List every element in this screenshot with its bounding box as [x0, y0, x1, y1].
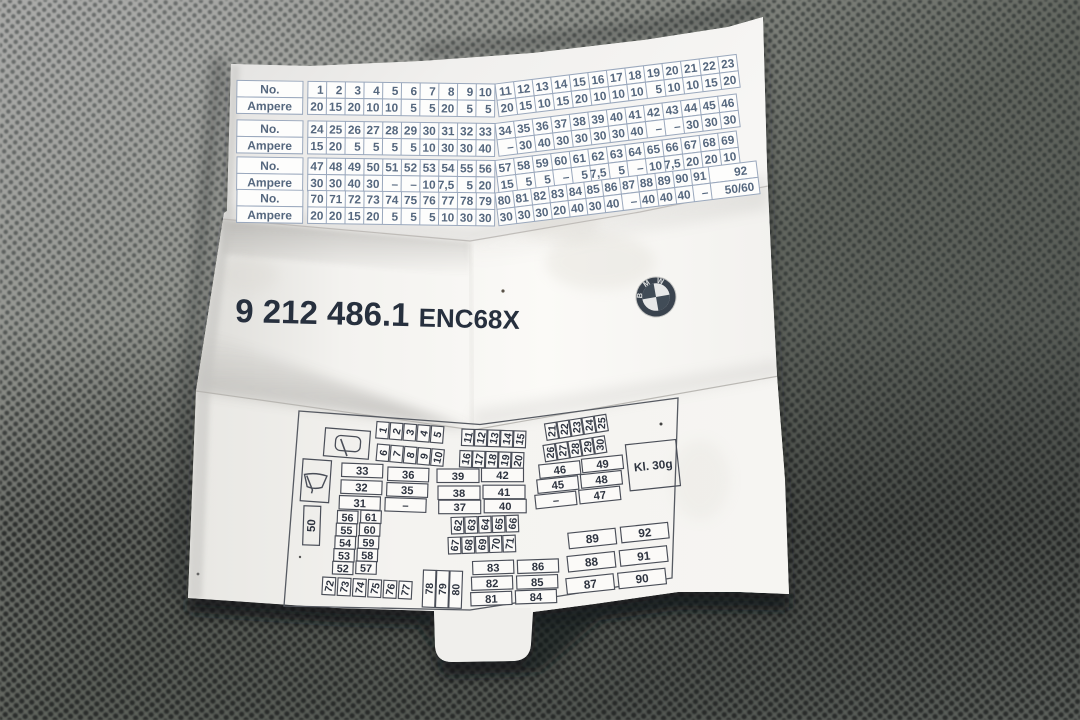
svg-text:20: 20: [722, 73, 737, 89]
svg-text:7,5: 7,5: [589, 165, 607, 181]
svg-text:20: 20: [574, 91, 589, 107]
svg-text:71: 71: [503, 537, 517, 550]
svg-text:88: 88: [639, 175, 654, 191]
svg-text:20: 20: [685, 154, 700, 170]
svg-text:82: 82: [486, 578, 499, 590]
svg-text:30: 30: [611, 126, 626, 142]
svg-text:–: –: [410, 177, 417, 191]
svg-text:58: 58: [361, 550, 373, 562]
svg-text:84: 84: [568, 184, 583, 200]
svg-text:46: 46: [553, 464, 567, 477]
svg-text:15: 15: [572, 74, 587, 90]
svg-text:10: 10: [722, 149, 737, 165]
svg-text:40: 40: [499, 501, 511, 513]
svg-text:30: 30: [518, 137, 533, 153]
svg-text:38: 38: [453, 488, 465, 500]
svg-text:92: 92: [733, 163, 748, 179]
svg-text:22: 22: [702, 58, 717, 74]
svg-text:87: 87: [621, 177, 636, 193]
svg-text:30: 30: [722, 112, 737, 128]
svg-text:89: 89: [657, 173, 672, 189]
svg-text:85: 85: [531, 577, 544, 589]
svg-text:39: 39: [591, 111, 606, 127]
svg-text:No.: No.: [260, 122, 280, 136]
svg-text:43: 43: [665, 102, 680, 118]
svg-text:30: 30: [535, 205, 550, 221]
svg-text:15: 15: [518, 98, 533, 114]
svg-text:15: 15: [329, 100, 343, 114]
svg-text:70: 70: [310, 192, 324, 206]
svg-text:5: 5: [354, 140, 361, 154]
svg-text:72: 72: [348, 192, 362, 206]
svg-text:5: 5: [373, 140, 380, 154]
svg-text:5: 5: [466, 102, 473, 116]
svg-text:49: 49: [348, 160, 362, 174]
svg-text:40: 40: [478, 141, 492, 155]
svg-text:20: 20: [441, 101, 455, 115]
svg-text:–: –: [402, 500, 409, 512]
svg-text:45: 45: [702, 98, 717, 114]
svg-text:7,5: 7,5: [663, 156, 681, 172]
svg-text:37: 37: [453, 502, 465, 514]
svg-text:47: 47: [310, 159, 324, 173]
svg-text:33: 33: [479, 125, 493, 139]
svg-text:67: 67: [449, 539, 463, 552]
svg-text:22: 22: [559, 423, 571, 435]
svg-text:No.: No.: [260, 82, 280, 96]
svg-text:25: 25: [329, 122, 343, 136]
svg-text:79: 79: [479, 194, 493, 208]
svg-text:81: 81: [485, 594, 498, 606]
svg-text:30: 30: [595, 439, 607, 451]
svg-text:85: 85: [586, 182, 601, 198]
svg-text:51: 51: [385, 160, 399, 174]
svg-text:15: 15: [310, 139, 324, 153]
svg-text:91: 91: [692, 168, 707, 184]
svg-text:52: 52: [337, 563, 349, 575]
svg-text:92: 92: [638, 525, 653, 540]
svg-text:90: 90: [635, 571, 650, 586]
svg-text:71: 71: [329, 192, 343, 206]
svg-text:38: 38: [572, 114, 587, 130]
svg-text:54: 54: [339, 538, 351, 550]
svg-text:74: 74: [385, 193, 399, 207]
svg-text:20: 20: [329, 139, 343, 153]
svg-text:23: 23: [720, 56, 735, 72]
svg-text:20: 20: [704, 151, 719, 167]
svg-text:9: 9: [467, 85, 474, 99]
svg-text:1: 1: [317, 83, 324, 97]
svg-text:35: 35: [401, 485, 414, 497]
svg-text:42: 42: [646, 105, 661, 121]
svg-text:30: 30: [460, 211, 474, 225]
svg-text:62: 62: [452, 519, 466, 532]
svg-text:91: 91: [636, 548, 651, 563]
svg-text:4: 4: [373, 84, 380, 98]
svg-text:15: 15: [704, 75, 719, 91]
svg-text:23: 23: [571, 421, 583, 433]
svg-text:10: 10: [611, 86, 626, 102]
svg-text:30: 30: [441, 141, 455, 155]
svg-text:12: 12: [516, 81, 531, 97]
svg-text:2: 2: [336, 83, 343, 97]
svg-text:36: 36: [535, 118, 550, 134]
svg-text:29: 29: [582, 441, 594, 453]
svg-text:52: 52: [404, 161, 418, 175]
svg-text:26: 26: [545, 447, 557, 459]
svg-text:21: 21: [683, 61, 698, 77]
svg-text:86: 86: [532, 561, 545, 573]
svg-text:No.: No.: [260, 191, 280, 205]
svg-text:48: 48: [329, 159, 343, 173]
svg-text:40: 40: [570, 200, 585, 216]
svg-text:78: 78: [424, 583, 436, 595]
svg-text:41: 41: [628, 107, 643, 123]
svg-text:5: 5: [466, 178, 473, 192]
svg-text:5: 5: [429, 210, 436, 224]
svg-text:90: 90: [675, 171, 690, 187]
svg-text:28: 28: [385, 123, 399, 137]
svg-text:24: 24: [584, 419, 596, 431]
svg-text:30: 30: [588, 198, 603, 214]
svg-text:30: 30: [517, 207, 532, 223]
svg-text:75: 75: [404, 193, 418, 207]
svg-text:17: 17: [609, 70, 624, 86]
svg-text:78: 78: [460, 194, 474, 208]
svg-text:20: 20: [310, 209, 324, 223]
svg-text:40: 40: [609, 109, 624, 125]
svg-text:–: –: [552, 495, 559, 508]
svg-text:30: 30: [499, 209, 514, 225]
svg-text:Ampere: Ampere: [247, 99, 292, 114]
svg-text:44: 44: [683, 100, 698, 116]
svg-text:57: 57: [360, 563, 372, 575]
svg-text:41: 41: [498, 487, 510, 499]
svg-text:50: 50: [306, 519, 318, 532]
svg-text:6: 6: [410, 84, 417, 98]
svg-text:76: 76: [423, 193, 437, 207]
svg-text:80: 80: [450, 583, 462, 595]
svg-text:83: 83: [550, 186, 565, 202]
svg-text:5: 5: [410, 140, 417, 154]
svg-text:84: 84: [530, 592, 544, 604]
svg-text:20: 20: [665, 63, 680, 79]
svg-text:33: 33: [356, 465, 369, 477]
svg-text:31: 31: [441, 124, 455, 138]
svg-text:70: 70: [490, 537, 504, 550]
svg-text:15: 15: [348, 209, 362, 223]
svg-text:80: 80: [497, 192, 512, 208]
svg-text:30: 30: [685, 117, 700, 133]
svg-text:64: 64: [628, 144, 643, 160]
svg-text:7,5: 7,5: [438, 178, 455, 192]
svg-text:87: 87: [583, 576, 598, 591]
svg-text:30: 30: [366, 177, 380, 191]
svg-text:55: 55: [460, 161, 474, 175]
svg-text:10: 10: [685, 77, 700, 93]
svg-text:10: 10: [366, 100, 380, 114]
svg-text:13: 13: [535, 79, 550, 95]
svg-text:24: 24: [310, 122, 324, 136]
svg-text:No.: No.: [260, 159, 280, 173]
svg-text:59: 59: [535, 155, 550, 171]
svg-text:48: 48: [595, 474, 609, 487]
svg-text:63: 63: [609, 146, 624, 162]
svg-text:26: 26: [348, 123, 362, 137]
svg-text:20: 20: [366, 209, 380, 223]
svg-text:29: 29: [404, 124, 418, 138]
svg-text:32: 32: [355, 482, 368, 494]
svg-text:18: 18: [628, 67, 643, 83]
svg-text:62: 62: [591, 148, 606, 164]
svg-text:66: 66: [665, 139, 680, 155]
svg-text:63: 63: [465, 518, 479, 531]
svg-text:5: 5: [410, 101, 417, 115]
svg-text:30: 30: [423, 124, 437, 138]
svg-text:21: 21: [546, 425, 558, 437]
svg-text:40: 40: [537, 135, 552, 151]
svg-text:42: 42: [496, 470, 508, 482]
svg-text:61: 61: [572, 151, 587, 167]
svg-text:30: 30: [593, 128, 608, 144]
svg-text:57: 57: [498, 160, 513, 176]
svg-text:40: 40: [630, 124, 645, 140]
svg-text:Ampere: Ampere: [247, 208, 292, 223]
svg-text:5: 5: [391, 140, 398, 154]
svg-text:53: 53: [423, 161, 437, 175]
svg-text:40: 40: [677, 187, 692, 203]
svg-text:20: 20: [310, 100, 324, 114]
svg-text:14: 14: [553, 76, 568, 92]
svg-text:20: 20: [329, 209, 343, 223]
svg-text:40: 40: [641, 192, 656, 208]
svg-text:82: 82: [532, 188, 547, 204]
svg-text:16: 16: [591, 72, 606, 88]
svg-text:30: 30: [574, 130, 589, 146]
svg-text:5: 5: [429, 101, 436, 115]
svg-text:69: 69: [476, 538, 490, 551]
svg-text:10: 10: [385, 101, 399, 115]
svg-text:36: 36: [402, 469, 415, 481]
svg-text:20: 20: [478, 178, 492, 192]
svg-text:67: 67: [683, 137, 698, 153]
svg-text:20: 20: [500, 100, 515, 116]
svg-text:68: 68: [462, 538, 476, 551]
svg-text:40: 40: [606, 196, 621, 212]
svg-text:8: 8: [448, 85, 455, 99]
svg-text:30: 30: [329, 176, 343, 190]
svg-text:Ampere: Ampere: [247, 138, 292, 153]
svg-text:68: 68: [702, 135, 717, 151]
svg-text:10: 10: [648, 158, 663, 174]
svg-text:86: 86: [604, 179, 619, 195]
svg-text:10: 10: [441, 210, 455, 224]
svg-text:69: 69: [720, 132, 735, 148]
svg-text:56: 56: [479, 162, 493, 176]
svg-text:10: 10: [422, 178, 436, 192]
svg-text:35: 35: [516, 121, 531, 137]
svg-text:64: 64: [479, 518, 493, 531]
svg-text:40: 40: [348, 177, 362, 191]
svg-text:60: 60: [553, 153, 568, 169]
svg-text:40: 40: [659, 189, 674, 205]
svg-text:5: 5: [410, 210, 417, 224]
svg-text:30: 30: [310, 176, 324, 190]
svg-text:83: 83: [487, 562, 500, 574]
svg-text:5: 5: [485, 102, 492, 116]
svg-text:58: 58: [516, 158, 531, 174]
svg-text:27: 27: [366, 123, 380, 137]
svg-text:88: 88: [584, 554, 599, 569]
svg-text:55: 55: [340, 525, 352, 537]
svg-text:89: 89: [585, 531, 600, 546]
svg-text:65: 65: [493, 517, 507, 530]
svg-text:5: 5: [391, 210, 398, 224]
svg-text:54: 54: [441, 161, 455, 175]
svg-text:45: 45: [551, 479, 565, 492]
svg-text:15: 15: [555, 93, 570, 109]
svg-text:27: 27: [557, 445, 569, 457]
svg-text:10: 10: [422, 141, 436, 155]
svg-text:77: 77: [441, 194, 455, 208]
svg-text:20: 20: [348, 100, 362, 114]
svg-text:15: 15: [500, 176, 515, 192]
svg-text:59: 59: [362, 537, 374, 549]
svg-text:53: 53: [338, 550, 350, 562]
svg-text:46: 46: [720, 95, 735, 111]
svg-text:30: 30: [555, 133, 570, 149]
svg-text:65: 65: [646, 142, 661, 158]
svg-text:10: 10: [593, 89, 608, 105]
svg-text:60: 60: [363, 525, 375, 537]
svg-text:30: 30: [478, 211, 492, 225]
svg-text:50: 50: [366, 160, 380, 174]
svg-text:49: 49: [596, 458, 610, 471]
svg-text:30: 30: [704, 114, 719, 130]
svg-text:Ampere: Ampere: [247, 175, 292, 190]
svg-text:37: 37: [553, 116, 568, 132]
svg-text:3: 3: [354, 83, 361, 97]
svg-text:34: 34: [498, 123, 513, 139]
svg-text:61: 61: [365, 512, 377, 524]
svg-text:56: 56: [341, 512, 353, 524]
svg-text:10: 10: [667, 80, 682, 96]
svg-text:19: 19: [646, 65, 661, 81]
svg-text:66: 66: [506, 517, 520, 530]
svg-text:30: 30: [460, 141, 474, 155]
svg-text:25: 25: [596, 417, 608, 429]
svg-text:47: 47: [593, 489, 607, 502]
svg-text:31: 31: [353, 498, 366, 510]
svg-text:10: 10: [537, 95, 552, 111]
svg-text:–: –: [391, 177, 398, 191]
svg-text:10: 10: [479, 85, 493, 99]
svg-text:10: 10: [630, 84, 645, 100]
svg-text:5: 5: [392, 84, 399, 98]
svg-text:28: 28: [570, 443, 582, 455]
svg-text:73: 73: [366, 193, 380, 207]
svg-text:11: 11: [498, 83, 513, 98]
svg-text:7: 7: [429, 84, 436, 98]
svg-text:79: 79: [437, 583, 449, 595]
svg-text:32: 32: [460, 124, 474, 138]
svg-text:39: 39: [452, 471, 464, 483]
svg-text:20: 20: [552, 203, 567, 219]
svg-text:81: 81: [515, 190, 530, 206]
